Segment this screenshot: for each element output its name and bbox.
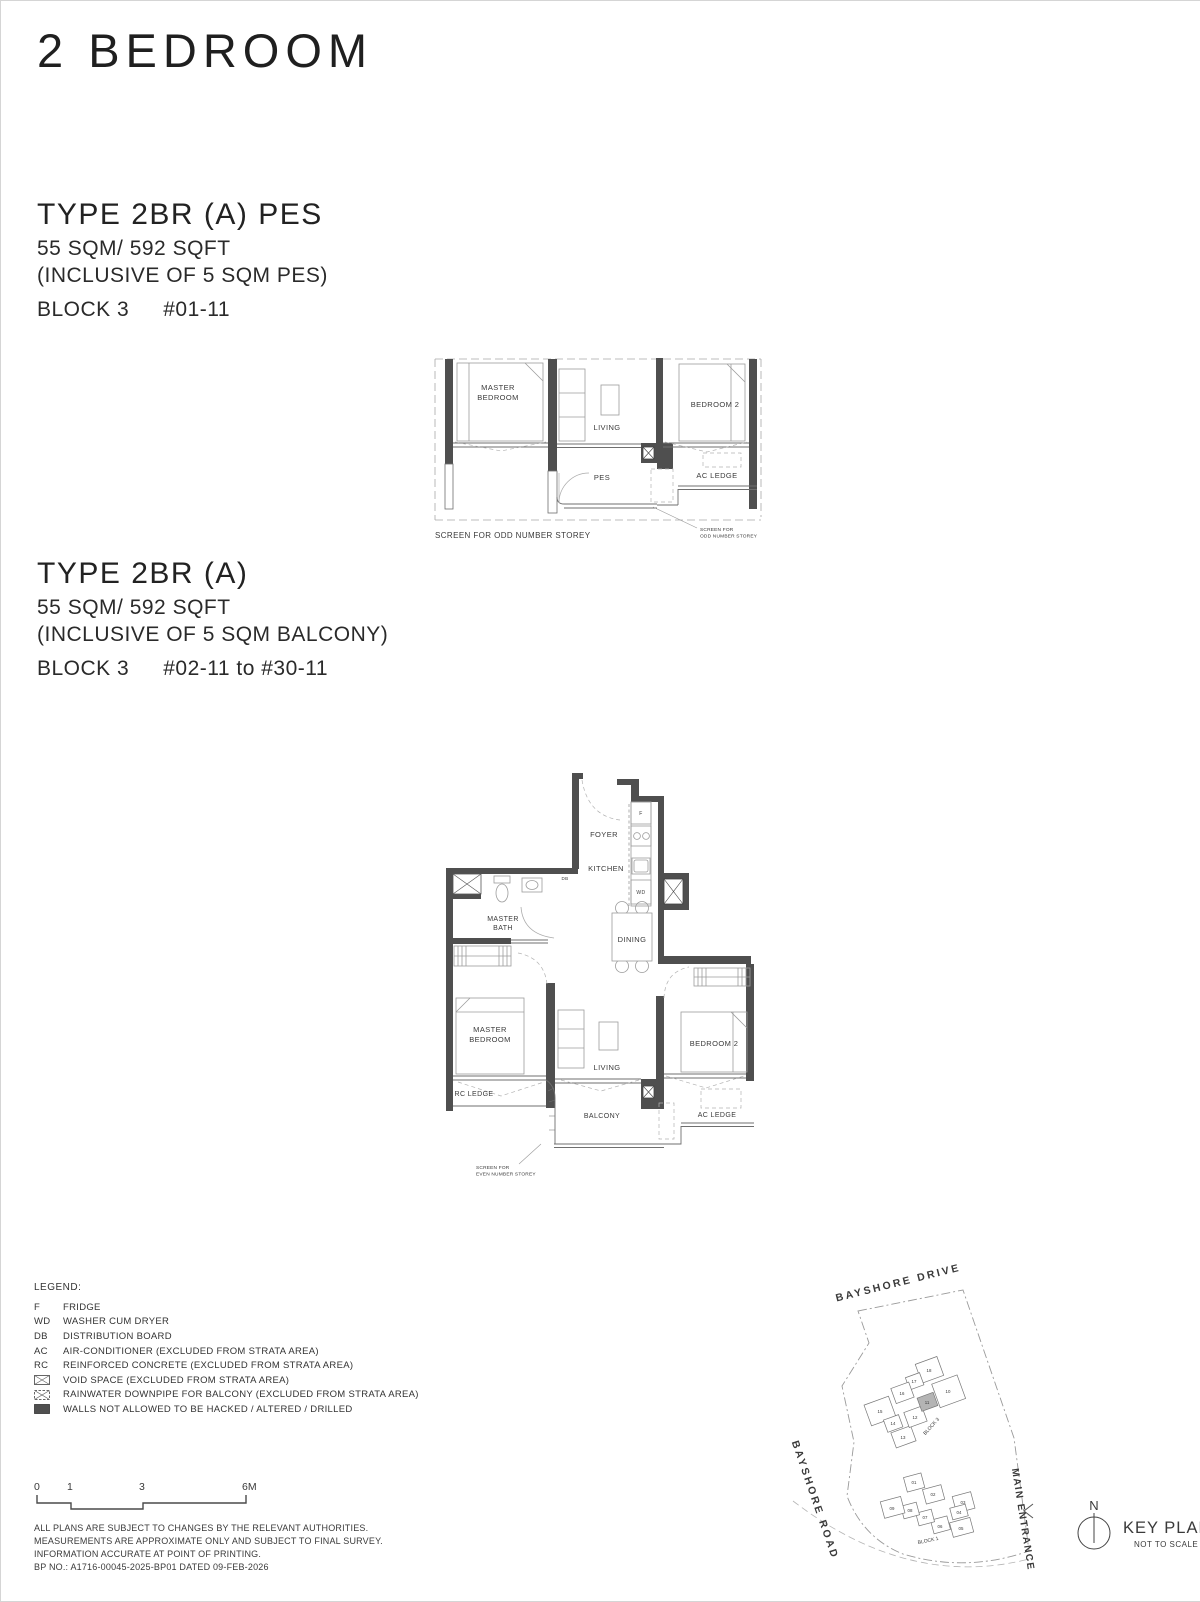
legend-item: WDWASHER CUM DRYER <box>34 1315 419 1330</box>
legend-desc: AIR-CONDITIONER (EXCLUDED FROM STRATA AR… <box>63 1346 319 1357</box>
unit-number: 14 <box>891 1421 896 1426</box>
disclaimer-line: INFORMATION ACCURATE AT POINT OF PRINTIN… <box>34 1548 383 1561</box>
section-type-2br-a: TYPE 2BR (A) 55 SQM/ 592 SQFT (INCLUSIVE… <box>37 557 388 681</box>
master-bedroom-label: BEDROOM <box>469 1035 511 1044</box>
legend-desc: RAINWATER DOWNPIPE FOR BALCONY (EXCLUDED… <box>63 1389 419 1400</box>
block1-label: BLOCK 1 <box>917 1536 939 1546</box>
block-label: BLOCK 3 <box>37 657 129 681</box>
scale-bar: 0 1 3 6M <box>34 1479 284 1515</box>
unit-number: 16 <box>900 1391 905 1396</box>
rainwater-downpipe-icon <box>643 447 654 459</box>
unit-number: 12 <box>913 1415 918 1420</box>
inclusive-text: (INCLUSIVE OF 5 SQM PES) <box>37 264 328 289</box>
disclaimer-line: ALL PLANS ARE SUBJECT TO CHANGES BY THE … <box>34 1522 383 1535</box>
pes-door-arc <box>559 473 589 503</box>
bayshore-drive-label: BAYSHORE DRIVE <box>834 1262 962 1305</box>
inclusive-text: (INCLUSIVE OF 5 SQM BALCONY) <box>37 623 388 648</box>
master-bedroom-label: MASTER <box>473 1025 507 1034</box>
balcony-label: BALCONY <box>584 1113 620 1120</box>
unit-range: #02-11 to #30-11 <box>163 657 328 681</box>
legend: LEGEND: FFRIDGE WDWASHER CUM DRYER DBDIS… <box>34 1282 419 1417</box>
legend-desc: DISTRIBUTION BOARD <box>63 1331 172 1342</box>
washer-dryer-label: WD <box>636 890 645 896</box>
screen-leader-line <box>519 1144 541 1164</box>
area-text: 55 SQM/ 592 SQFT <box>37 596 388 621</box>
bayshore-road-label: BAYSHORE ROAD <box>789 1439 841 1561</box>
disclaimer-line: BP NO.: A1716-00045-2025-BP01 DATED 09-F… <box>34 1561 383 1574</box>
master-bedroom-label: BEDROOM <box>477 393 519 402</box>
legend-item: RAINWATER DOWNPIPE FOR BALCONY (EXCLUDED… <box>34 1388 419 1403</box>
legend-item: VOID SPACE (EXCLUDED FROM STRATA AREA) <box>34 1373 419 1388</box>
block3-cluster <box>864 1356 966 1447</box>
legend-item: ACAIR-CONDITIONER (EXCLUDED FROM STRATA … <box>34 1344 419 1359</box>
unit-number: 09 <box>890 1506 895 1511</box>
type-title: TYPE 2BR (A) PES <box>37 198 328 232</box>
type-title: TYPE 2BR (A) <box>37 557 388 591</box>
unit-number: 08 <box>908 1508 913 1513</box>
north-label: N <box>1089 1498 1098 1513</box>
legend-item: WALLS NOT ALLOWED TO BE HACKED / ALTERED… <box>34 1402 419 1417</box>
scale-tick-1: 1 <box>67 1481 73 1493</box>
master-bath-label: BATH <box>493 925 513 932</box>
bedroom2-label: BEDROOM 2 <box>690 1039 739 1048</box>
legend-item: FFRIDGE <box>34 1300 419 1315</box>
dining-label: DINING <box>618 935 647 944</box>
screen-note-small: EVEN NUMBER STOREY <box>476 1172 536 1178</box>
balcony-downpipe-icon <box>643 1086 654 1098</box>
rainwater-downpipe-icon <box>34 1390 63 1400</box>
legend-desc: FRIDGE <box>63 1302 101 1313</box>
legend-desc: WALLS NOT ALLOWED TO BE HACKED / ALTERED… <box>63 1404 353 1415</box>
unit-number: 15 <box>878 1409 883 1414</box>
legend-key: WD <box>34 1316 63 1327</box>
master-bath-label: MASTER <box>487 916 519 923</box>
legend-key: AC <box>34 1346 63 1357</box>
ac-ledge-label: AC LEDGE <box>696 471 737 480</box>
void-space-icon <box>34 1375 63 1385</box>
legend-desc: WASHER CUM DRYER <box>63 1316 169 1327</box>
plan1-cavity-walls <box>445 464 557 513</box>
scale-tick-6m: 6M <box>242 1481 257 1493</box>
pes-label: PES <box>594 473 610 482</box>
screen-leader-line <box>653 507 697 528</box>
fridge-label: F <box>639 811 642 817</box>
area-text: 55 SQM/ 592 SQFT <box>37 237 328 262</box>
floor-plan-2br-a: FOYER KITCHEN MASTER BATH DINING MASTER … <box>426 746 776 1186</box>
scale-tick-3: 3 <box>139 1481 145 1493</box>
block-label: BLOCK 3 <box>37 298 129 322</box>
unit-number: 05 <box>959 1526 964 1531</box>
unit-number: 13 <box>901 1435 906 1440</box>
legend-item: DBDISTRIBUTION BOARD <box>34 1329 419 1344</box>
north-arrow-icon <box>1078 1513 1110 1549</box>
unit-number: 06 <box>938 1524 943 1529</box>
key-plan-subtitle: NOT TO SCALE <box>1134 1540 1198 1549</box>
page-title: 2 BEDROOM <box>37 23 373 78</box>
unit-number: 17 <box>912 1379 917 1384</box>
disclaimer-line: MEASUREMENTS ARE APPROXIMATE ONLY AND SU… <box>34 1535 383 1548</box>
floor-plan-2br-a-pes: MASTER BEDROOM LIVING BEDROOM 2 PES AC L… <box>421 339 766 554</box>
legend-heading: LEGEND: <box>34 1282 419 1293</box>
master-bedroom-label: MASTER <box>481 383 515 392</box>
screen-note-small: SCREEN FOR <box>700 527 734 533</box>
hatched-wall-icon <box>34 1404 63 1414</box>
unit-number: 10 <box>946 1389 951 1394</box>
unit-number: 07 <box>923 1515 928 1520</box>
shaft-rainwater-downpipe-icon <box>664 879 683 904</box>
rc-ledge-label: RC LEDGE <box>455 1091 494 1098</box>
screen-note-small: SCREEN FOR <box>476 1165 510 1171</box>
floor-plan-page: 2 BEDROOM TYPE 2BR (A) PES 55 SQM/ 592 S… <box>0 0 1200 1602</box>
legend-key: DB <box>34 1331 63 1342</box>
living-label: LIVING <box>594 1063 621 1072</box>
legend-desc: REINFORCED CONCRETE (EXCLUDED FROM STRAT… <box>63 1360 353 1371</box>
foyer-label: FOYER <box>590 830 618 839</box>
plan2-walls <box>446 773 754 1111</box>
key-plan-title: KEY PLAN <box>1123 1519 1200 1537</box>
unit-number: 03 <box>961 1500 966 1505</box>
scale-bar-line <box>37 1495 246 1509</box>
unit-number: 02 <box>931 1492 936 1497</box>
unit-number-highlighted: 11 <box>925 1400 930 1405</box>
ac-ledge-label: AC LEDGE <box>698 1112 737 1119</box>
disclaimer: ALL PLANS ARE SUBJECT TO CHANGES BY THE … <box>34 1522 383 1574</box>
scale-tick-0: 0 <box>34 1481 40 1493</box>
unit-number: 18 <box>927 1368 932 1373</box>
legend-key: RC <box>34 1360 63 1371</box>
screen-note: SCREEN FOR ODD NUMBER STOREY <box>435 531 591 540</box>
section-type-2br-a-pes: TYPE 2BR (A) PES 55 SQM/ 592 SQFT (INCLU… <box>37 198 328 322</box>
distribution-board-label: DB <box>561 876 568 881</box>
legend-key: F <box>34 1302 63 1313</box>
void-space-icon <box>453 874 481 894</box>
screen-note-small: ODD NUMBER STOREY <box>700 534 758 540</box>
kitchen-label: KITCHEN <box>588 864 624 873</box>
unit-range: #01-11 <box>163 298 230 322</box>
unit-number: 04 <box>957 1510 962 1515</box>
key-plan: 18 17 16 15 14 13 12 11 10 BLOCK 3 01 02 <box>781 1246 1200 1601</box>
unit-number: 01 <box>912 1480 917 1485</box>
bedroom2-label: BEDROOM 2 <box>691 400 740 409</box>
legend-item: RCREINFORCED CONCRETE (EXCLUDED FROM STR… <box>34 1358 419 1373</box>
living-label: LIVING <box>594 423 621 432</box>
legend-desc: VOID SPACE (EXCLUDED FROM STRATA AREA) <box>63 1375 289 1386</box>
